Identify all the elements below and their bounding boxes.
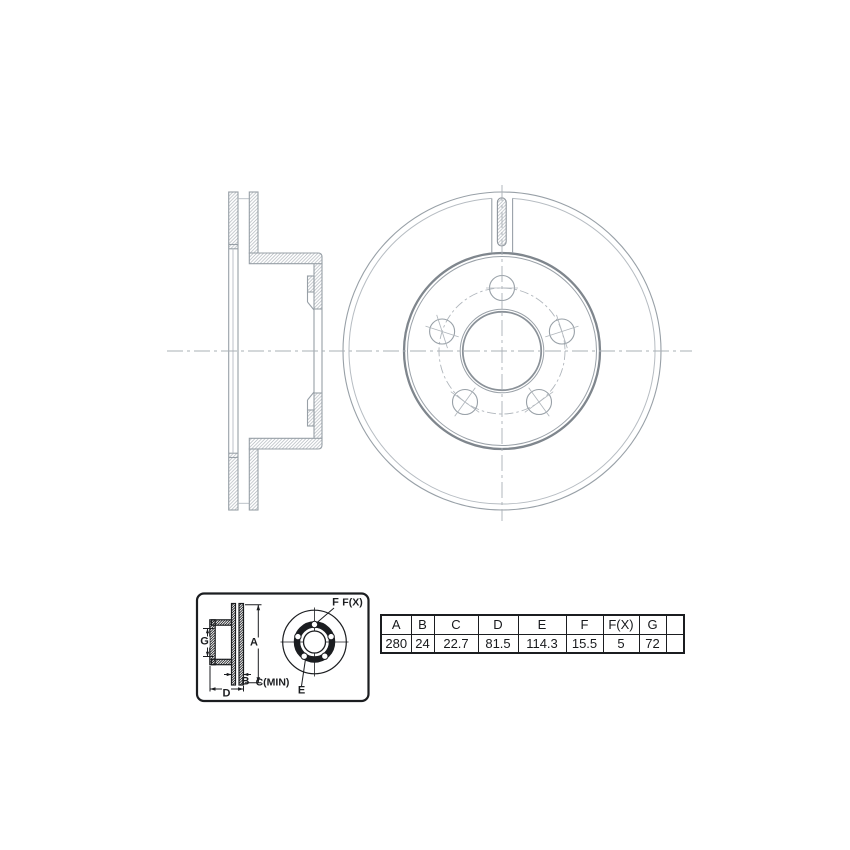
spec-value: 280 — [381, 634, 411, 653]
spec-table-value-row: 280 24 22.7 81.5 114.3 15.5 5 72 — [381, 634, 684, 653]
hat-wall-step-top — [308, 276, 315, 310]
spec-col-header: A — [381, 615, 411, 634]
dim-label-b: B — [242, 676, 250, 687]
dim-label-c-min: C(MIN) — [256, 678, 290, 689]
spec-value: 22.7 — [434, 634, 478, 653]
spec-value: 81.5 — [478, 634, 518, 653]
mini-front-view — [281, 608, 349, 687]
brake-disc-technical-drawing: G A B C(MIN) D E F F(X) A B C D E F F(X)… — [0, 0, 850, 850]
spec-table-header-row: A B C D E F F(X) G — [381, 615, 684, 634]
hat-wall-step-bottom — [308, 392, 315, 426]
spec-table: A B C D E F F(X) G 280 24 22.7 81.5 114.… — [380, 614, 685, 654]
hat-flange-bottom — [249, 438, 322, 449]
dim-label-g: G — [199, 636, 210, 647]
centerlines — [167, 185, 692, 521]
spec-value-empty — [666, 634, 684, 653]
spec-col-header: D — [478, 615, 518, 634]
spec-col-header: F — [566, 615, 603, 634]
spec-value: 15.5 — [566, 634, 603, 653]
spec-col-header-empty — [666, 615, 684, 634]
dim-label-e: E — [298, 685, 305, 696]
mini-section-view — [210, 604, 244, 686]
spec-col-header: B — [411, 615, 434, 634]
spec-col-header: F(X) — [603, 615, 639, 634]
dim-label-f-x: F(X) — [342, 597, 362, 608]
spec-col-header: C — [434, 615, 478, 634]
spec-value: 114.3 — [518, 634, 566, 653]
spec-col-header: G — [639, 615, 666, 634]
drawing-linework — [0, 0, 850, 850]
dim-label-d: D — [222, 688, 232, 699]
dim-label-a: A — [249, 638, 259, 649]
spec-value: 24 — [411, 634, 434, 653]
dim-label-f: F — [332, 597, 339, 608]
spec-col-header: E — [518, 615, 566, 634]
spec-value: 72 — [639, 634, 666, 653]
spec-value: 5 — [603, 634, 639, 653]
mini-center-bore — [304, 631, 326, 653]
hat-flange-top — [249, 253, 322, 264]
